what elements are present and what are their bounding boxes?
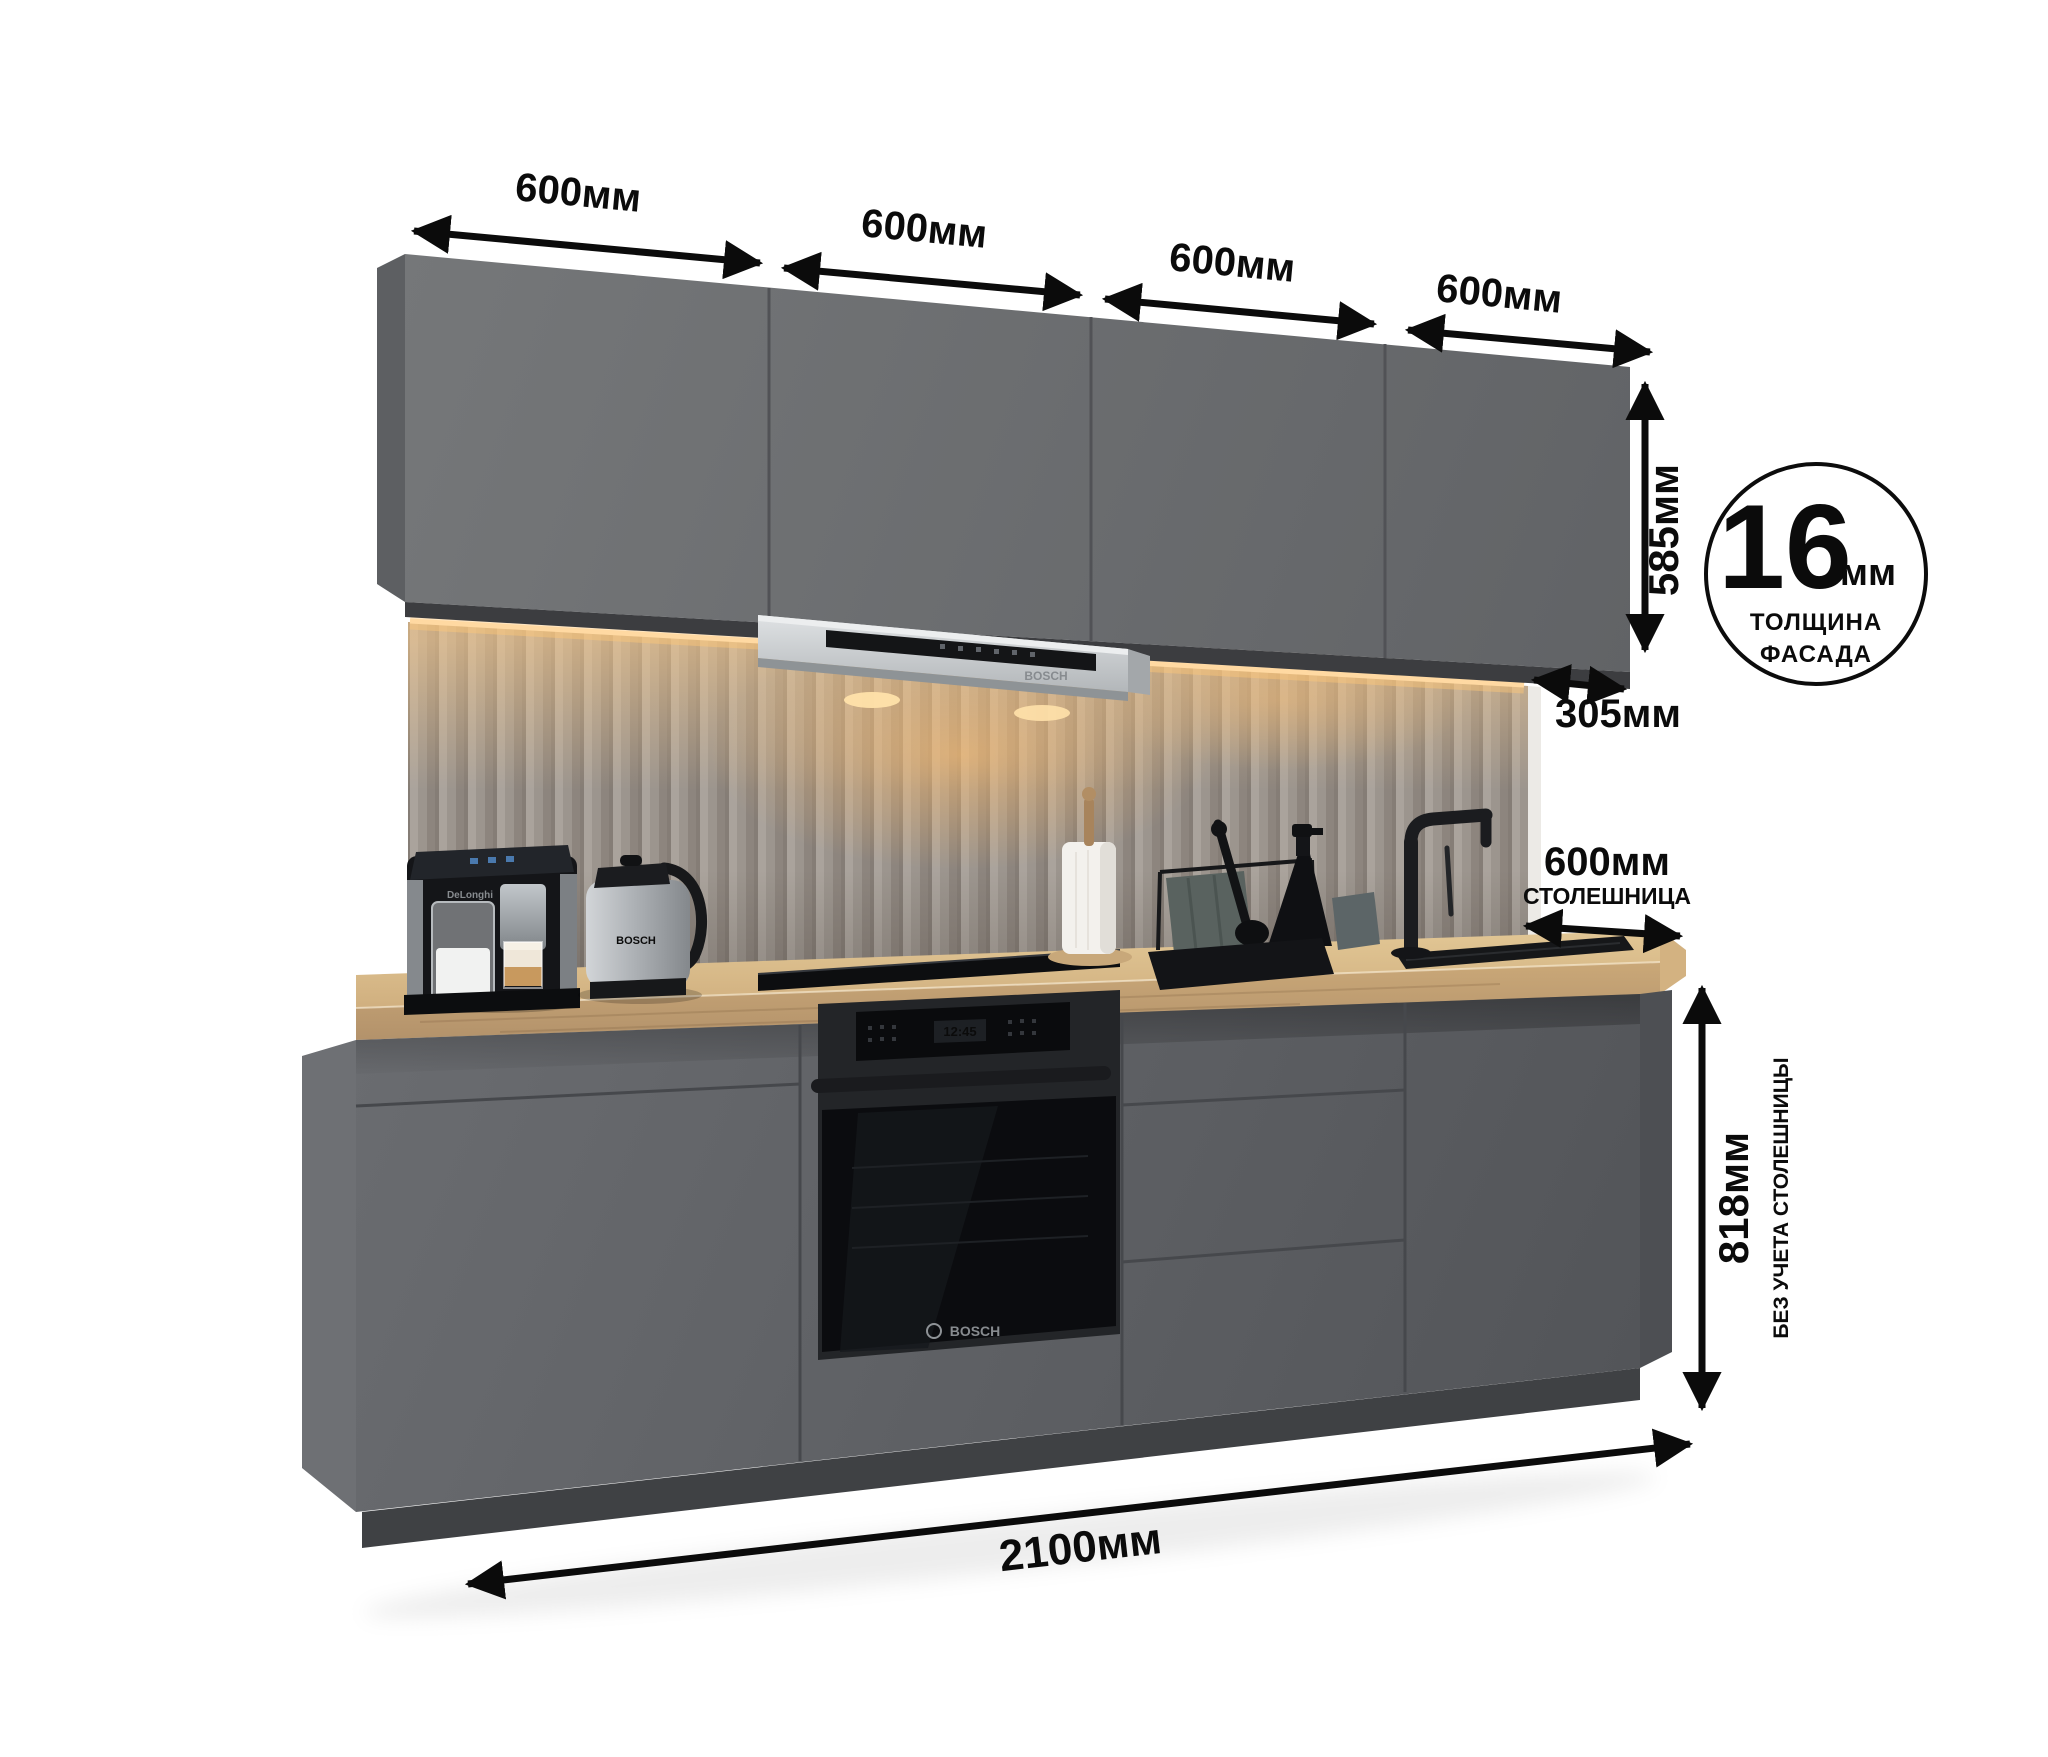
badge-value: 16 <box>1718 480 1851 614</box>
facade-thickness-badge: 16 мм ТОЛЩИНА ФАСАДА <box>1706 464 1926 684</box>
dim-label-818-note: БЕЗ УЧЕТА СТОЛЕШНИЦЫ <box>1770 1057 1793 1338</box>
dim-label-countertop-note: СТОЛЕШНИЦА <box>1523 883 1691 909</box>
dim-label-600-2: 600мм <box>859 201 988 256</box>
wall-cabinet-front <box>405 254 1630 672</box>
hood-brand-label: BOSCH <box>1024 669 1067 683</box>
dim-label-305: 305мм <box>1555 692 1681 736</box>
dim-arrow-top-1 <box>414 231 760 263</box>
base-side-panel-right <box>1640 990 1672 1368</box>
hood-lamp-left <box>844 692 900 708</box>
dim-label-818: 818мм <box>1710 1132 1757 1264</box>
kettle: BOSCH <box>578 855 702 1004</box>
kitchen-render: BOSCH <box>302 254 1686 1639</box>
badge-caption-1: ТОЛЩИНА <box>1750 609 1882 636</box>
dim-arrow-top-3 <box>1105 299 1374 324</box>
hood-side <box>1128 649 1150 695</box>
badge-caption-2: ФАСАДА <box>1760 641 1872 668</box>
coffee-dispenser <box>500 884 546 950</box>
oven-brand-label: BOSCH <box>950 1323 1001 1339</box>
dim-label-585: 585мм <box>1640 464 1687 596</box>
coffee-machine: DeLonghi <box>404 845 580 1015</box>
oven-clock: 12:45 <box>943 1024 976 1039</box>
wall-cabinets <box>377 254 1630 689</box>
dim-arrow-top-4 <box>1408 330 1650 352</box>
kitchen-dimensions-illustration: BOSCH <box>0 0 2048 1757</box>
dim-arrow-top-2 <box>784 268 1080 295</box>
dim-label-600-4: 600мм <box>1434 266 1563 321</box>
kettle-brand-label: BOSCH <box>616 935 656 947</box>
coffee-brand-label: DeLonghi <box>447 890 493 901</box>
base-side-panel-left <box>302 1040 356 1512</box>
kitchen-render-svg: BOSCH <box>0 0 2048 1757</box>
dim-label-600-3: 600мм <box>1167 235 1296 290</box>
latte-glass <box>504 942 542 988</box>
badge-unit: мм <box>1840 552 1896 594</box>
dim-label-600-countertop: 600мм <box>1544 840 1670 884</box>
side-towel <box>1332 892 1380 950</box>
hood-lamp-right <box>1014 705 1070 721</box>
oven: 12:45 BOSCH <box>818 990 1120 1360</box>
dim-label-600-1: 600мм <box>513 165 642 220</box>
countertop-end-face <box>1660 930 1686 994</box>
wall-cabinet-side-panel <box>377 254 405 602</box>
